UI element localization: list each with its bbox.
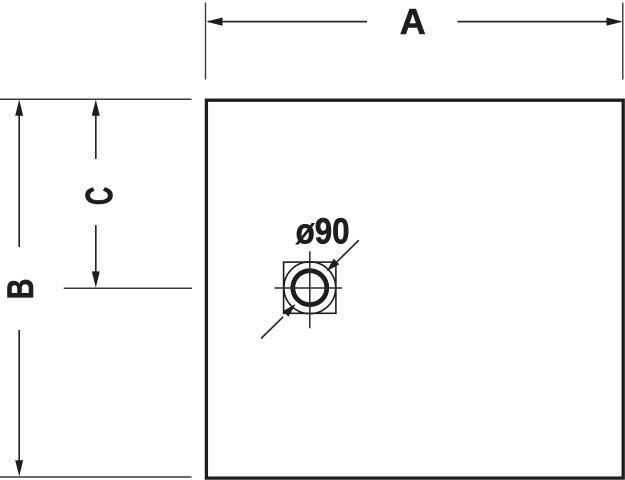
svg-text:C: C	[78, 187, 120, 205]
svg-text:ø90: ø90	[296, 211, 350, 252]
svg-text:A: A	[400, 1, 426, 42]
svg-text:B: B	[1, 279, 42, 300]
